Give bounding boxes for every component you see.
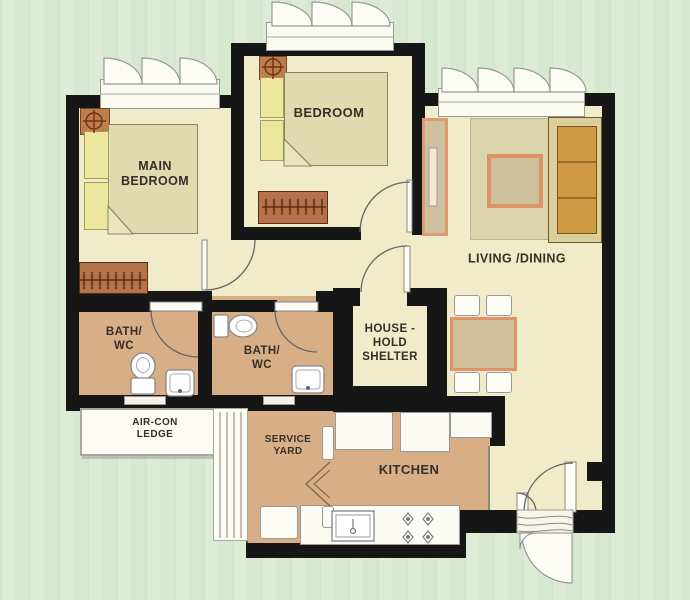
wall-mainbed-bedroom-divider xyxy=(231,95,244,227)
household-shelter-label: HOUSE - HOLD SHELTER xyxy=(362,322,418,364)
entrance-threshold xyxy=(517,510,573,533)
wall-bath2-top-stub xyxy=(316,291,333,312)
wall-entrance-pier xyxy=(587,462,603,481)
wardrobe xyxy=(79,262,148,294)
bed-pillow xyxy=(84,182,109,230)
wall-bottom-b xyxy=(460,510,518,533)
bed-pillow xyxy=(260,120,284,161)
wall-bath1-top xyxy=(66,300,152,312)
bath2-vent-window xyxy=(263,396,295,405)
dining-chair xyxy=(454,372,480,393)
bath1-label: BATH/ WC xyxy=(106,325,142,353)
bed-pillow xyxy=(84,131,109,179)
wall-bedroom-bottom xyxy=(231,227,361,240)
dining-chair xyxy=(454,295,480,316)
coffee-table xyxy=(487,154,543,208)
washing-machine xyxy=(260,506,298,539)
wall-bottom-c xyxy=(573,510,615,533)
wall-bath2-top xyxy=(212,300,277,312)
wall-bottom-a xyxy=(246,543,466,558)
aircon-ledge-label: AIR-CON LEDGE xyxy=(132,417,178,441)
main-bedroom-window xyxy=(100,79,220,109)
kitchen-counter xyxy=(400,412,450,452)
bifold-door-frame xyxy=(322,426,334,460)
kitchen-living-edge xyxy=(488,446,490,510)
wall-kitchen-top xyxy=(333,396,505,412)
kitchen-label: KITCHEN xyxy=(379,462,440,478)
bedroom-window xyxy=(266,22,394,51)
household-shelter-door-gap xyxy=(360,288,407,308)
entrance-gate xyxy=(520,533,572,583)
main-bedroom-label: MAIN BEDROOM xyxy=(121,159,189,190)
dining-chair xyxy=(486,372,512,393)
bed-pillow xyxy=(260,77,284,118)
living-dining-label: LIVING /DINING xyxy=(468,251,566,266)
wall-left xyxy=(66,95,79,411)
bath2-label: BATH/ WC xyxy=(244,344,280,372)
wardrobe xyxy=(258,191,328,224)
floor-plan: MAIN BEDROOM BEDROOM LIVING /DINING BATH… xyxy=(0,0,690,600)
kitchen-counter xyxy=(335,412,393,450)
kitchen-counter xyxy=(450,412,492,438)
bedroom-label: BEDROOM xyxy=(294,105,365,121)
dining-table xyxy=(450,317,517,371)
sofa-cushions xyxy=(557,126,597,234)
living-window xyxy=(438,88,585,117)
wall-right xyxy=(602,93,615,533)
bath1-vent-window xyxy=(124,396,166,405)
bifold-door-frame xyxy=(322,506,334,528)
service-yard-label: SERVICE YARD xyxy=(265,434,312,458)
aircon-ledge-grille xyxy=(213,408,248,541)
tv-console xyxy=(422,118,448,236)
dining-chair xyxy=(486,295,512,316)
wall-kitchen-corner xyxy=(490,396,505,446)
